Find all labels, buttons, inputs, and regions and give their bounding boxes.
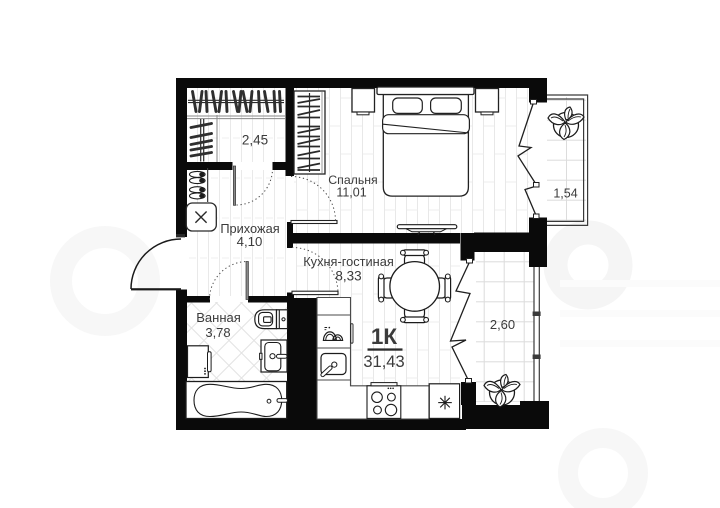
svg-text:2,60: 2,60: [490, 317, 515, 332]
svg-text:1,54: 1,54: [553, 187, 577, 201]
svg-text:2,45: 2,45: [242, 133, 268, 148]
svg-text:11,01: 11,01: [336, 186, 366, 200]
svg-text:31,43: 31,43: [363, 353, 404, 371]
svg-text:8,33: 8,33: [335, 269, 361, 284]
svg-text:1К: 1К: [371, 324, 398, 349]
svg-text:Ванная: Ванная: [196, 310, 241, 325]
svg-text:Кухня-гостиная: Кухня-гостиная: [303, 254, 394, 269]
svg-text:4,10: 4,10: [237, 234, 263, 249]
svg-text:3,78: 3,78: [205, 325, 230, 340]
